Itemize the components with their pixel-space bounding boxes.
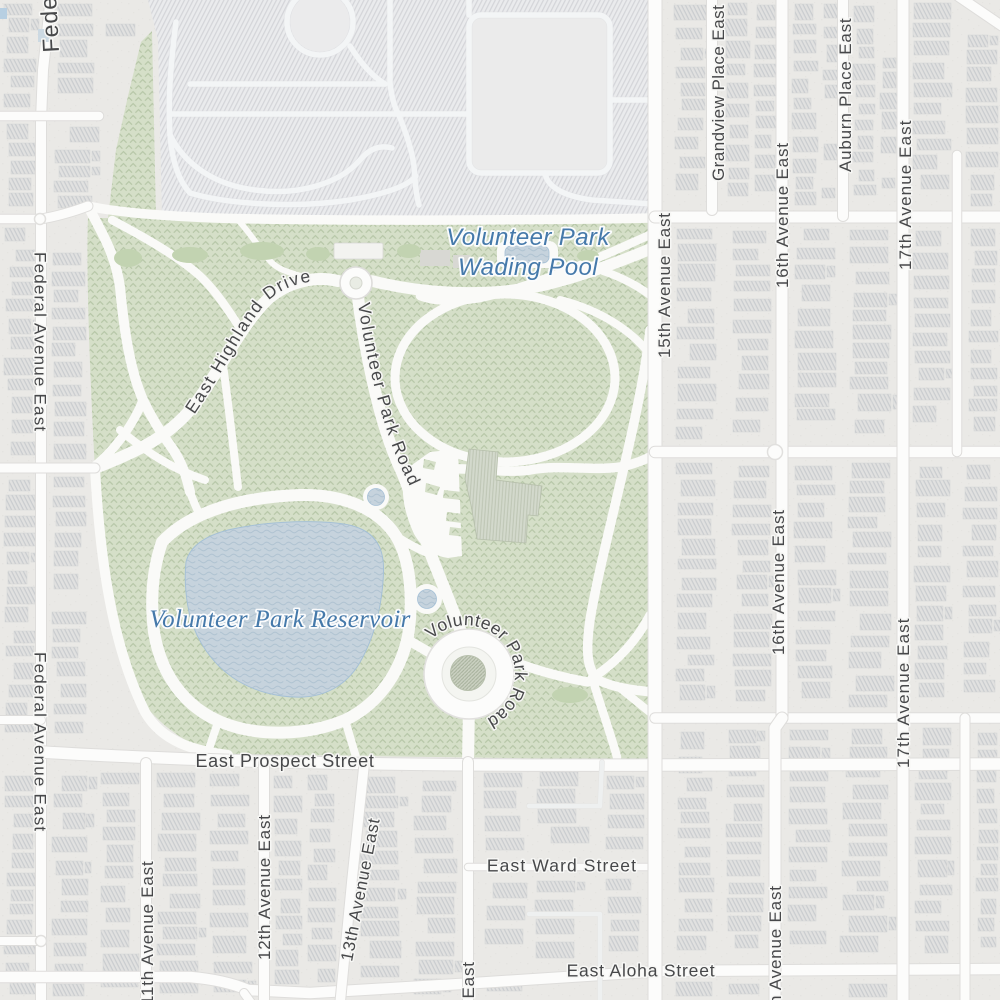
svg-text:16th Avenue East: 16th Avenue East	[766, 885, 785, 1000]
svg-text:East Aloha Street: East Aloha Street	[567, 961, 716, 981]
svg-text:11th Avenue East: 11th Avenue East	[138, 861, 157, 1000]
svg-text:Federal Avenue East: Federal Avenue East	[31, 252, 50, 432]
svg-text:Federal Avenue East: Federal Avenue East	[31, 652, 50, 832]
svg-text:East Ward Street: East Ward Street	[487, 856, 637, 876]
svg-text:Grandview Place East: Grandview Place East	[709, 5, 728, 181]
svg-text:Volunteer Park: Volunteer Park	[446, 224, 611, 251]
svg-text:16th Avenue East: 16th Avenue East	[773, 142, 792, 288]
svg-text:17th Avenue East: 17th Avenue East	[896, 119, 915, 270]
svg-text:East Prospect Street: East Prospect Street	[195, 751, 374, 771]
svg-text:Auburn Place East: Auburn Place East	[836, 18, 855, 172]
svg-text:Volunteer Park Reservoir: Volunteer Park Reservoir	[149, 606, 410, 633]
svg-text:12th Avenue East: 12th Avenue East	[255, 814, 274, 960]
svg-text:17th Avenue East: 17th Avenue East	[894, 617, 913, 768]
svg-text:14th Avenue East: 14th Avenue East	[459, 961, 478, 1000]
svg-text:Wading Pool: Wading Pool	[458, 254, 598, 281]
svg-text:16th Avenue East: 16th Avenue East	[769, 509, 788, 655]
svg-text:15th Avenue East: 15th Avenue East	[655, 212, 674, 358]
